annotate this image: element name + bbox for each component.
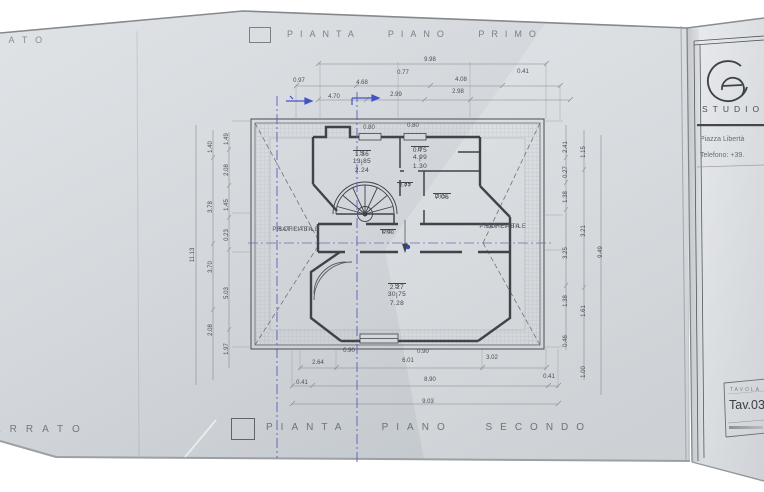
drawing-graphics [0,0,764,492]
titleblock-sheet [681,18,764,481]
titleblock-divider [697,124,764,126]
blue-pen-dot [406,245,410,249]
photo-of-floorplan-sheet: RATO ERRATO PIANTA PIANO PRIMO PIANTA PI… [0,0,764,492]
